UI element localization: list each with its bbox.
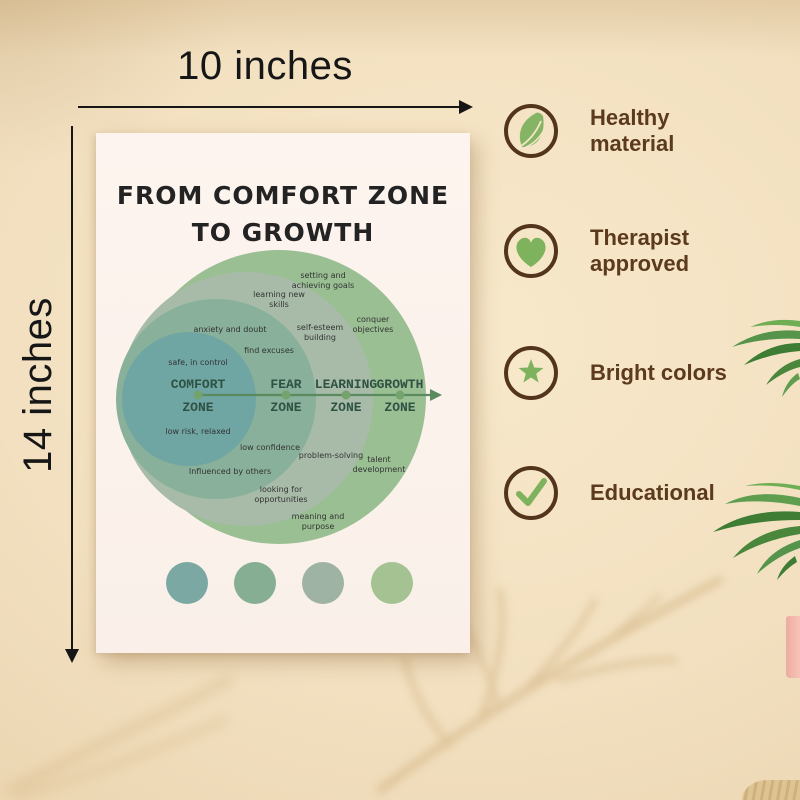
feature-label: Therapist approved: [590, 225, 689, 277]
diagram-label: learning new skills: [253, 290, 305, 310]
leaf-icon: [502, 102, 560, 160]
check-icon: [502, 464, 560, 522]
feature-label: Healthy material: [590, 105, 674, 157]
feature-educational: Educational: [502, 464, 715, 522]
diagram-label: meaning and purpose: [289, 512, 347, 532]
width-dimension-label: 10 inches: [115, 44, 415, 89]
heart-icon: [502, 222, 560, 280]
palette-swatch-teal: [166, 562, 208, 604]
poster-title-line1: FROM COMFORT ZONE: [96, 177, 470, 214]
feature-label: Bright colors: [590, 360, 727, 386]
plant-leaves-top: [720, 313, 800, 408]
learning-zone-label: LEARNING ZONE: [315, 373, 377, 419]
flower-pot: [786, 616, 800, 678]
diagram-label: safe, in control: [168, 358, 227, 368]
arrow-right-head: [459, 100, 473, 114]
diagram-label: anxiety and doubt: [193, 325, 266, 335]
palette-swatch-green: [234, 562, 276, 604]
poster-title-line2: TO GROWTH: [96, 214, 470, 251]
growth-zone-label: GROWTH ZONE: [377, 373, 424, 419]
scene: 10 inches 14 inches FROM COMFORT ZONE TO…: [0, 0, 800, 800]
diagram-label: talent development: [348, 455, 410, 475]
comfort-zone-label: COMFORT ZONE: [171, 373, 226, 419]
width-dimension-arrow: [78, 106, 460, 108]
feature-label: Educational: [590, 480, 715, 506]
diagram-label: self-esteem building: [290, 323, 350, 343]
poster-title: FROM COMFORT ZONE TO GROWTH: [96, 177, 470, 251]
height-dimension-arrow: [71, 126, 73, 650]
feature-bright-colors: Bright colors: [502, 344, 727, 402]
diagram-label: low confidence: [240, 443, 300, 453]
arrow-down-head: [65, 649, 79, 663]
poster: FROM COMFORT ZONE TO GROWTH COMFORT ZONE…: [96, 133, 470, 653]
diagram-label: conquer objectives: [347, 315, 399, 335]
fear-zone-label: FEAR ZONE: [270, 373, 301, 419]
diagram-label: find excuses: [244, 346, 294, 356]
feature-therapist-approved: Therapist approved: [502, 222, 689, 280]
wicker-basket: [742, 780, 800, 800]
diagram-label: low risk, relaxed: [165, 427, 230, 437]
diagram-label: Influenced by others: [189, 467, 271, 477]
diagram-label: setting and achieving goals: [284, 271, 362, 291]
height-dimension-label: 14 inches: [16, 235, 64, 535]
star-icon: [502, 344, 560, 402]
palette-swatch-lightgreen: [371, 562, 413, 604]
diagram-label: looking for opportunities: [249, 485, 313, 505]
leaf-shadow-left: [0, 660, 240, 800]
feature-healthy-material: Healthy material: [502, 102, 674, 160]
palette-swatch-sage: [302, 562, 344, 604]
